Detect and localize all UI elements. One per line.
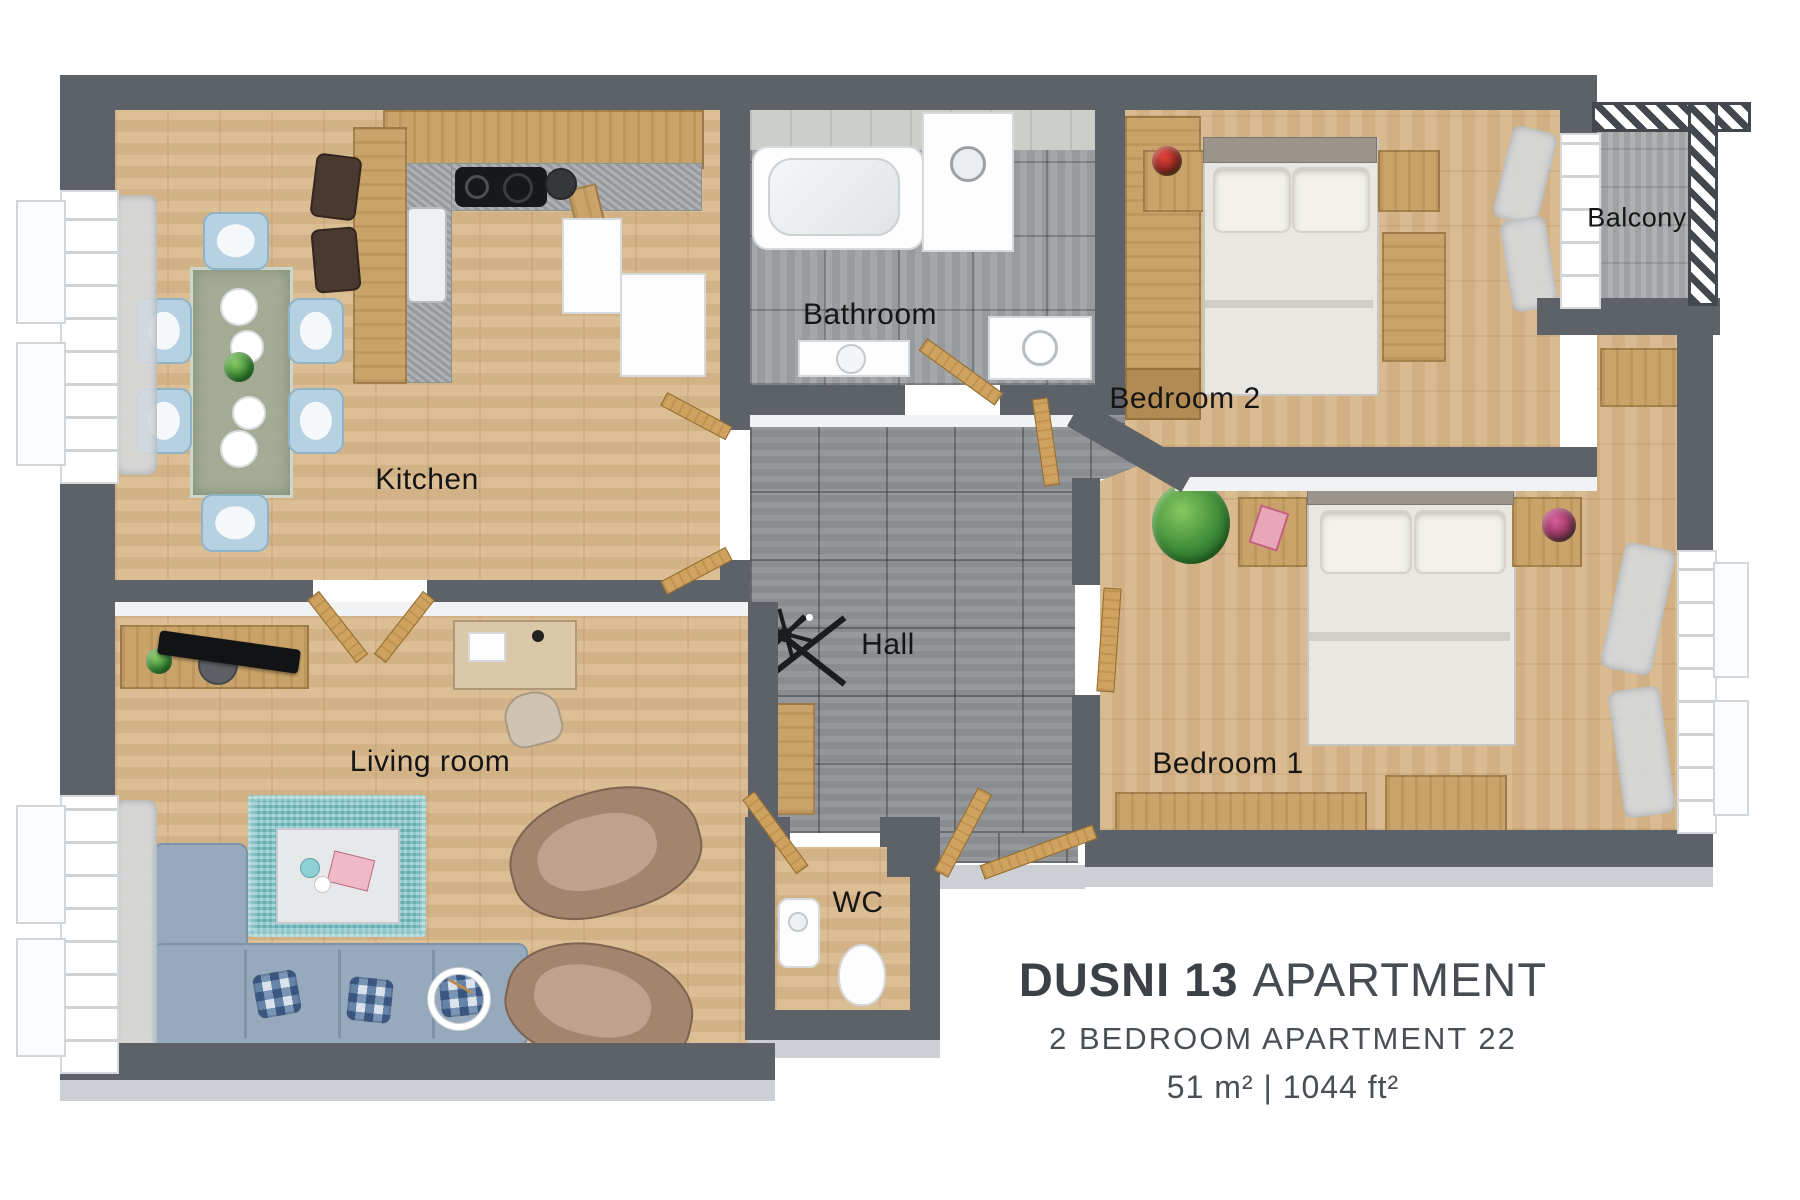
wall-kitchen-living-left bbox=[100, 580, 313, 602]
room-label-wc: WC bbox=[833, 886, 884, 920]
bedroom2-flowers bbox=[1152, 146, 1182, 176]
apartment-title-bold: DUSNI 13 bbox=[1019, 953, 1239, 1006]
bedroom1-dresser bbox=[1385, 775, 1507, 834]
dining-chair-top bbox=[203, 212, 269, 270]
sofa-pillow-1 bbox=[252, 969, 303, 1020]
bedroom1-window bbox=[1677, 550, 1717, 834]
wc-sink bbox=[778, 898, 820, 968]
apartment-area: 51 m² | 1044 ft² bbox=[1003, 1069, 1563, 1106]
plate bbox=[220, 288, 258, 326]
toilet bbox=[838, 944, 886, 1006]
hall-cabinet bbox=[773, 703, 815, 815]
coffee-cup-icon bbox=[314, 876, 331, 893]
shower-head-icon bbox=[950, 146, 986, 182]
apartment-title-light: APARTMENT bbox=[1253, 953, 1548, 1006]
room-label-bathroom: Bathroom bbox=[803, 298, 937, 332]
living-curtain bbox=[115, 800, 157, 1065]
area-metric: 51 m² bbox=[1167, 1069, 1254, 1105]
bar-stool-2 bbox=[310, 226, 361, 294]
bedroom1-plant bbox=[1152, 482, 1230, 564]
living-window-sill-2 bbox=[16, 938, 66, 1057]
wall-bedroom1-top bbox=[1160, 447, 1597, 477]
wall-bathroom-bottom-left bbox=[720, 385, 905, 415]
room-label-balcony: Balcony bbox=[1587, 203, 1687, 234]
wall-kitchen-hall-upper bbox=[720, 110, 750, 430]
base-shadow-bedroom1 bbox=[1085, 867, 1713, 887]
wall-bedroom1-west-lower bbox=[1072, 695, 1100, 835]
bathtub-basin bbox=[768, 158, 900, 236]
room-label-living: Living room bbox=[350, 745, 511, 779]
coat-stand-hub bbox=[778, 628, 792, 642]
wall-kitchen-living-right bbox=[427, 580, 750, 602]
kitchen-window-sill-1 bbox=[16, 200, 66, 324]
bedroom1-bench-bottom bbox=[1115, 792, 1367, 834]
balcony-railing-top bbox=[1592, 102, 1751, 132]
kitchen-window bbox=[60, 190, 119, 484]
wall-bathroom-bedroom2 bbox=[1095, 110, 1125, 415]
desk-lamp-icon bbox=[532, 630, 544, 642]
wc-sink-drain bbox=[788, 912, 808, 932]
wall-bedroom1-bottom bbox=[1085, 830, 1713, 867]
bedroom2-bench bbox=[1382, 232, 1446, 362]
bedroom1-window-sill-1 bbox=[1713, 562, 1749, 678]
bedroom1-nook-bench bbox=[1600, 348, 1681, 407]
sofa-seam bbox=[244, 950, 247, 1038]
wall-face-hall-top bbox=[750, 415, 1080, 427]
kitchen-fridge bbox=[620, 273, 706, 377]
apartment-title: DUSNI 13 APARTMENT bbox=[1003, 952, 1563, 1007]
wall-face-bedroom1-top bbox=[1175, 477, 1597, 491]
plate bbox=[220, 430, 258, 468]
bedroom1-blanket-fold bbox=[1309, 632, 1510, 641]
living-window bbox=[60, 795, 119, 1074]
wall-wc-left bbox=[745, 817, 775, 1040]
wall-clock-decor bbox=[428, 968, 490, 1030]
bedroom1-window-sill-2 bbox=[1713, 700, 1749, 816]
dining-chair-right-2 bbox=[288, 388, 344, 454]
vanity-basin bbox=[836, 344, 866, 374]
kitchen-upper-cabinets bbox=[383, 110, 704, 169]
bedroom2-nightstand-right bbox=[1378, 150, 1440, 212]
wall-exterior-bottom-living bbox=[60, 1043, 775, 1080]
dining-chair-right-1 bbox=[288, 298, 344, 364]
bedroom1-flower-bowl bbox=[1542, 508, 1576, 542]
apartment-subtitle: 2 BEDROOM APARTMENT 22 bbox=[1003, 1021, 1563, 1057]
pot-icon bbox=[545, 168, 577, 200]
wall-entrance-stub bbox=[887, 817, 927, 877]
room-label-bedroom1: Bedroom 1 bbox=[1152, 747, 1303, 781]
bedroom2-pillow-left bbox=[1213, 167, 1291, 233]
sofa-pillow-2 bbox=[346, 976, 394, 1024]
sofa-seam bbox=[338, 950, 341, 1038]
bar-stool-1 bbox=[309, 152, 362, 221]
cooktop bbox=[455, 167, 547, 207]
burner-icon bbox=[465, 175, 489, 199]
area-imperial: 1044 ft² bbox=[1283, 1069, 1400, 1105]
bedroom2-blanket-fold bbox=[1205, 300, 1373, 308]
wall-exterior-top bbox=[60, 75, 1597, 110]
bedroom2-pillow-right bbox=[1292, 167, 1370, 233]
wall-bedroom1-east-upper bbox=[1677, 335, 1713, 555]
wall-bedroom1-west-upper bbox=[1072, 478, 1100, 585]
base-shadow-living bbox=[60, 1080, 775, 1101]
washer-door-icon bbox=[1022, 330, 1058, 366]
area-separator: | bbox=[1263, 1069, 1272, 1105]
shower bbox=[922, 112, 1014, 252]
room-label-bedroom2: Bedroom 2 bbox=[1109, 382, 1260, 416]
dining-chair-bottom bbox=[201, 494, 269, 552]
title-block: DUSNI 13 APARTMENT 2 BEDROOM APARTMENT 2… bbox=[1003, 952, 1563, 1106]
living-window-sill-1 bbox=[16, 805, 66, 924]
bedroom1-pillow-left bbox=[1320, 510, 1412, 574]
kitchen-sink bbox=[407, 207, 447, 303]
room-label-kitchen: Kitchen bbox=[375, 463, 479, 497]
laptop bbox=[468, 632, 506, 662]
bedroom2-headboard bbox=[1203, 137, 1377, 163]
plate bbox=[232, 396, 266, 430]
bedroom1-pillow-right bbox=[1414, 510, 1506, 574]
coffee-cup-icon bbox=[300, 858, 320, 878]
kitchen-cabinet-white bbox=[562, 218, 622, 314]
coat-hook-dot bbox=[806, 614, 813, 621]
room-label-hall: Hall bbox=[861, 628, 915, 662]
floor-plan-page: Kitchen Bathroom Bedroom 2 Balcony Hall … bbox=[0, 0, 1800, 1200]
balcony-railing-right bbox=[1688, 102, 1718, 306]
wall-wc-bottom bbox=[745, 1010, 940, 1040]
table-centerpiece-plant bbox=[224, 352, 254, 382]
kitchen-curtain bbox=[115, 195, 157, 475]
burner-pan-icon bbox=[503, 173, 533, 203]
kitchen-window-sill-2 bbox=[16, 342, 66, 466]
